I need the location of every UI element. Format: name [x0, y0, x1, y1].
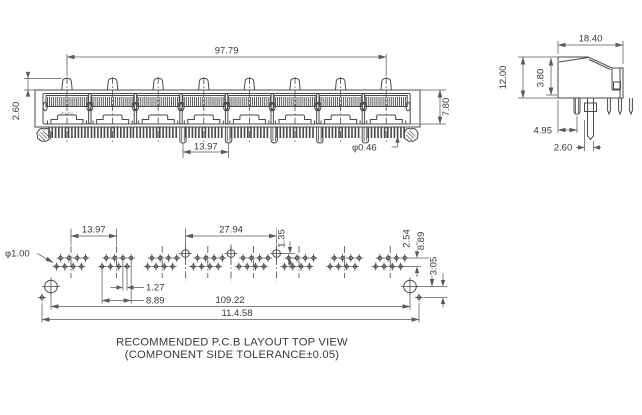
peg-hole-pad [270, 245, 283, 282]
side-view: 18.40 12.00 3.80 4.95 2.60 [498, 34, 632, 154]
pad-group [53, 246, 90, 278]
svg-text:13.97: 13.97 [194, 142, 218, 153]
svg-text:2.60: 2.60 [11, 102, 22, 121]
pad-group [144, 246, 181, 278]
technical-drawing-page: CLCI 97.79 2.60 7. [0, 0, 642, 415]
pcb-layout: 13.97 27.94 1.35 φ1.00 1.27 [5, 225, 447, 362]
svg-text:7.80: 7.80 [441, 98, 452, 117]
pad-group [189, 246, 226, 278]
pcb-caption-line1: RECOMMENDED P.C.B LAYOUT TOP VIEW [116, 337, 348, 349]
svg-text:27.94: 27.94 [219, 225, 243, 236]
dim-latch-height: 2.60 [11, 72, 62, 120]
svg-text:2.54: 2.54 [402, 229, 413, 248]
rj45-port [362, 77, 410, 142]
mount-hole [42, 278, 60, 296]
rj45-port [134, 77, 182, 142]
svg-text:φ0.46: φ0.46 [352, 143, 377, 154]
dim-hole-to-pad: 3.05 [424, 257, 448, 308]
dim-row-offset: 1.35 [277, 229, 296, 268]
svg-text:1.35: 1.35 [277, 229, 288, 248]
small-pad [38, 294, 46, 302]
side-body [558, 57, 623, 98]
svg-text:109.22: 109.22 [215, 295, 244, 306]
pcb-caption-line2: (COMPONENT SIDE TOLERANCE±0.05) [125, 349, 339, 361]
dim-peg-pitch-front: 13.97 [183, 142, 229, 159]
dim-group-pitch: 13.97 [71, 225, 117, 246]
dim-opening-height: 7.80 [410, 90, 452, 124]
pad-group [281, 246, 318, 278]
side-contact-window [614, 82, 621, 89]
pad-group [326, 246, 363, 278]
svg-text:97.79: 97.79 [215, 46, 239, 57]
svg-text:13.97: 13.97 [82, 225, 106, 236]
rj45-port [317, 77, 365, 142]
svg-text:18.40: 18.40 [579, 34, 603, 45]
pad-group [98, 246, 135, 278]
side-ground-tab [588, 98, 594, 140]
svg-text:4.95: 4.95 [534, 126, 553, 137]
front-view: CLCI 97.79 2.60 7. [11, 46, 452, 159]
peg-hole-pad [225, 245, 238, 282]
svg-text:8.89: 8.89 [416, 232, 427, 251]
rj45-port [180, 77, 228, 142]
svg-text:φ1.00: φ1.00 [5, 249, 30, 260]
side-pins [608, 98, 633, 114]
dim-height: 12.00 [498, 57, 558, 98]
dim-depth: 18.40 [558, 34, 623, 65]
svg-text:12.00: 12.00 [498, 66, 509, 90]
svg-text:11.4.58: 11.4.58 [222, 308, 253, 319]
dim-peg-offset: 4.95 [534, 100, 578, 137]
side-peg-hatch [576, 98, 579, 113]
dim-hole-diameter: φ1.00 [5, 249, 53, 263]
rj45-connector-drawing: CLCI 97.79 2.60 7. [0, 0, 642, 415]
side-peg [574, 98, 580, 114]
dim-pin-diameter: φ0.46 [352, 136, 400, 154]
svg-text:2.60: 2.60 [554, 143, 573, 154]
svg-text:8.89: 8.89 [146, 296, 165, 307]
side-body-details [559, 58, 620, 99]
side-tab-shoulder [585, 103, 597, 112]
svg-text:1.27: 1.27 [146, 283, 165, 294]
svg-text:3.05: 3.05 [429, 257, 440, 276]
pad-group [372, 246, 409, 278]
ground-clip [404, 129, 418, 142]
small-pad [415, 294, 423, 302]
rj45-port [271, 77, 319, 142]
dim-contact-height: 3.80 [536, 58, 558, 95]
port-marking: CLCI [61, 112, 73, 117]
peg-hole-pad [179, 245, 192, 282]
rj45-port [89, 77, 137, 142]
svg-text:3.80: 3.80 [536, 69, 547, 88]
dim-port-span: 97.79 [67, 46, 386, 77]
pad-group [235, 246, 272, 278]
rj45-port [225, 77, 273, 142]
